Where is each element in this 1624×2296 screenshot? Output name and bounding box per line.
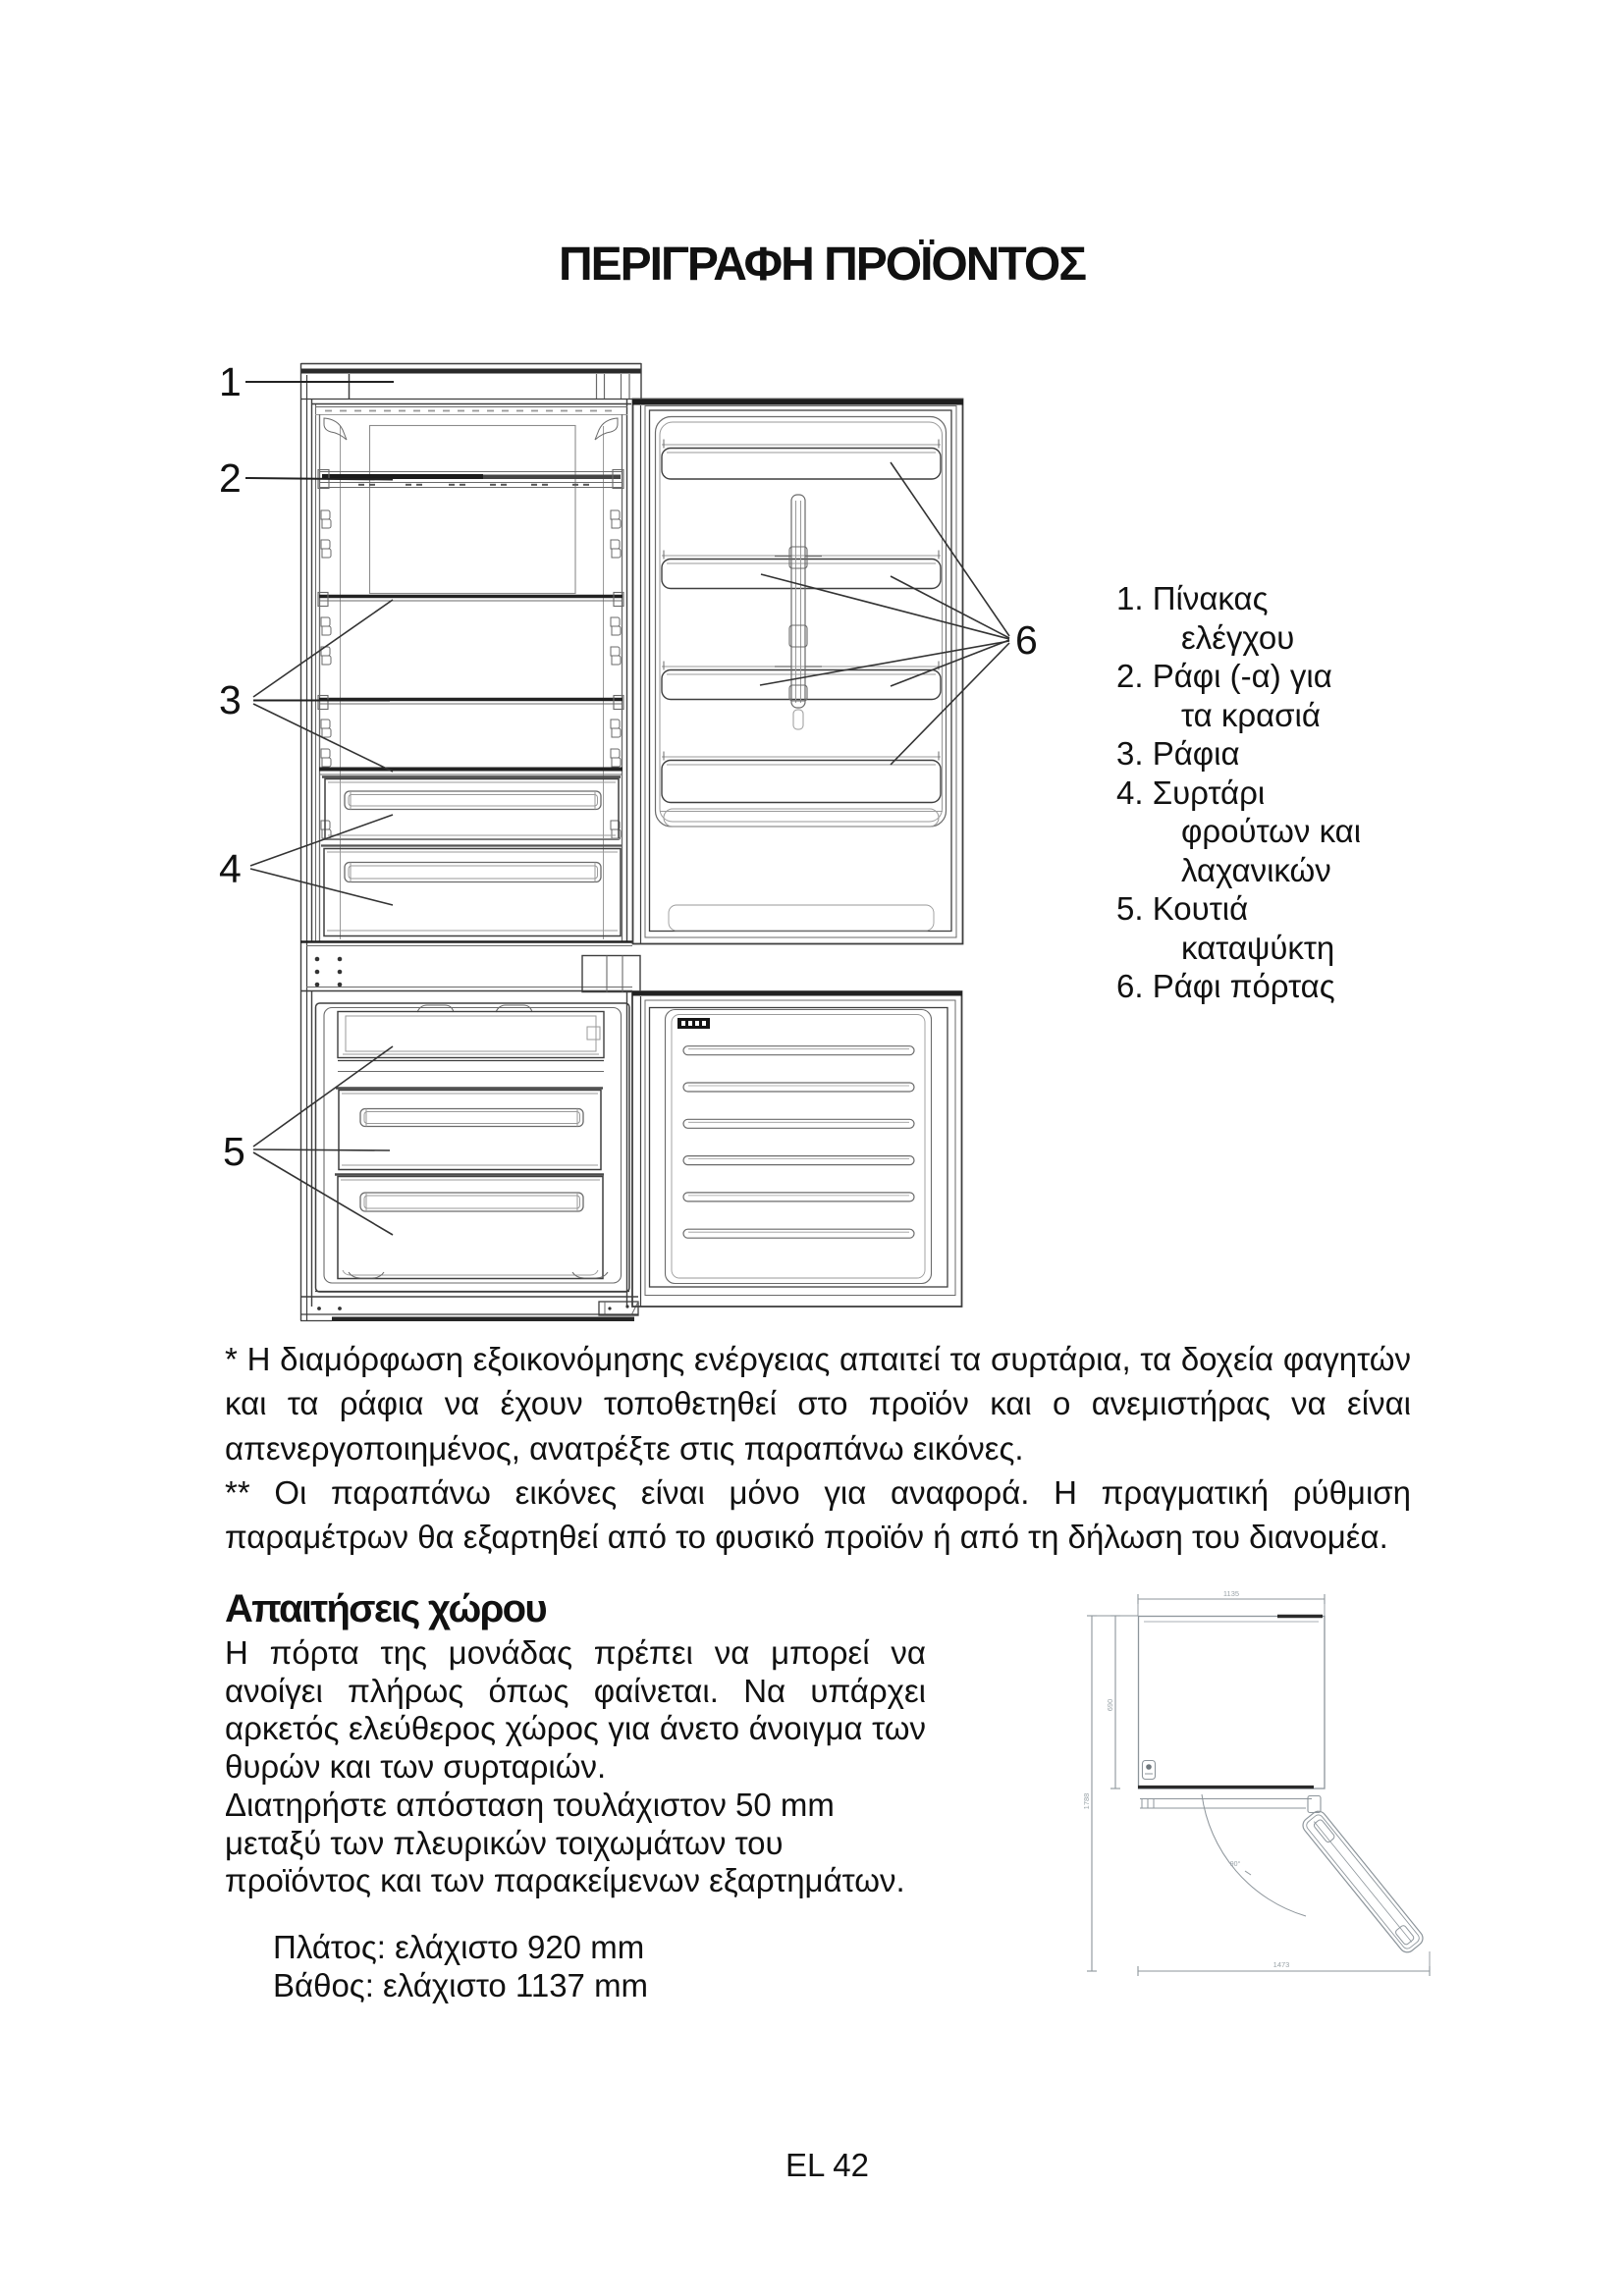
svg-text:5: 5 xyxy=(223,1129,245,1174)
svg-text:1135: 1135 xyxy=(1223,1589,1239,1598)
svg-text:6: 6 xyxy=(1015,617,1038,663)
svg-text:1: 1 xyxy=(219,359,242,404)
svg-text:3: 3 xyxy=(219,677,242,722)
svg-text:1473: 1473 xyxy=(1273,1960,1290,1969)
svg-text:90°: 90° xyxy=(1230,1860,1241,1868)
svg-text:690: 690 xyxy=(1106,1699,1114,1712)
svg-text:1788: 1788 xyxy=(1082,1793,1091,1810)
svg-text:2: 2 xyxy=(219,455,242,501)
svg-text:4: 4 xyxy=(219,846,242,891)
